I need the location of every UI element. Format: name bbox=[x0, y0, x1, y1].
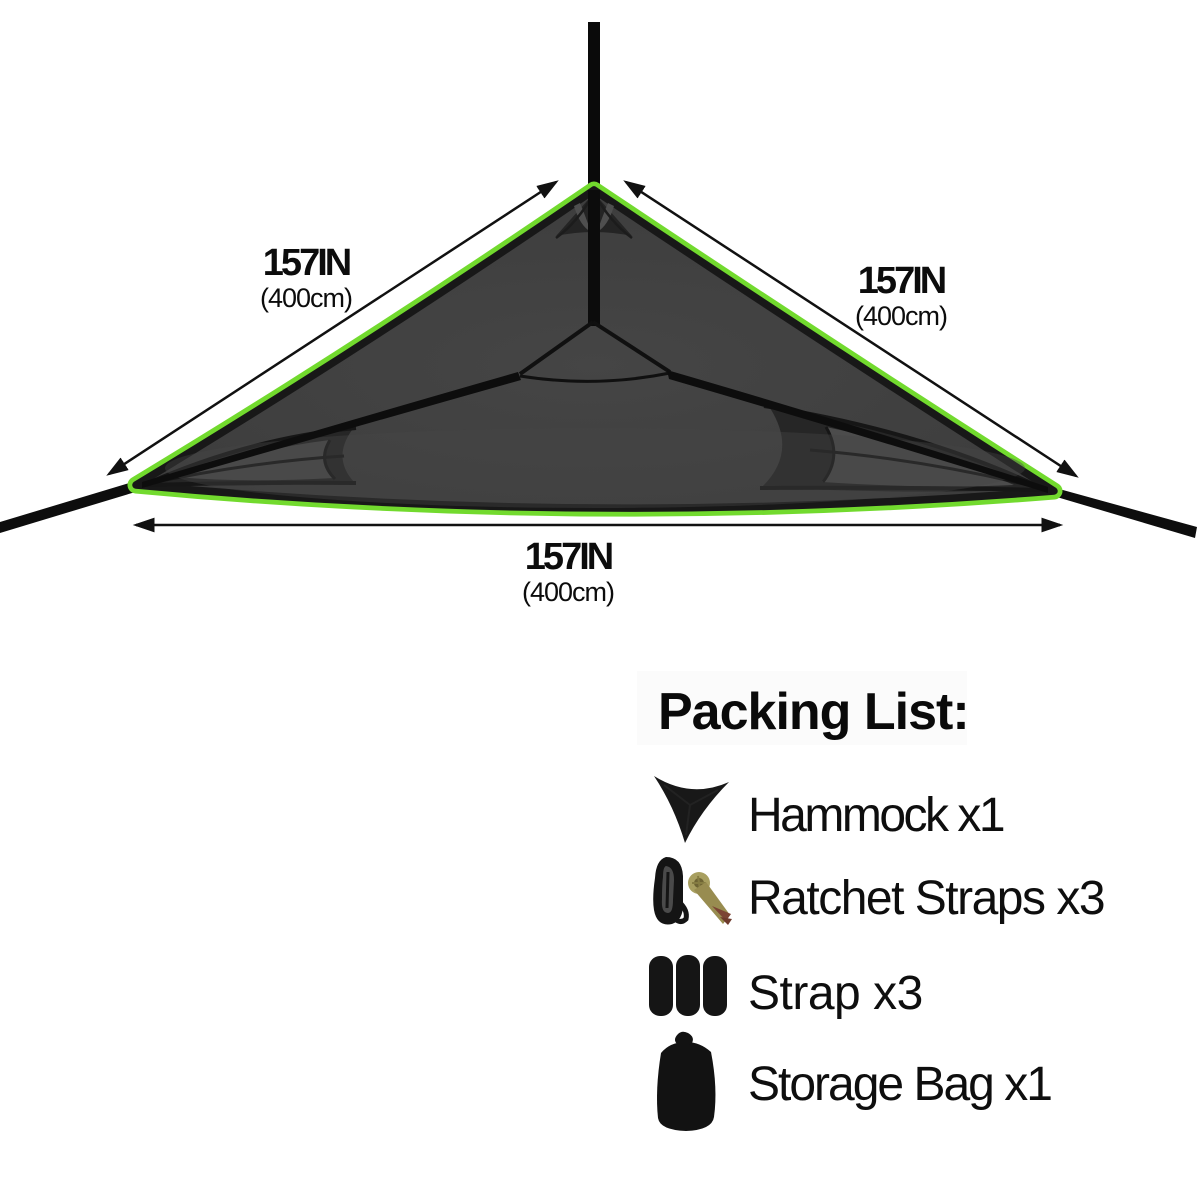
svg-text:157IN: 157IN bbox=[525, 536, 612, 578]
svg-text:(400cm): (400cm) bbox=[260, 283, 352, 313]
svg-text:Strap x3: Strap x3 bbox=[748, 967, 923, 1020]
svg-text:(400cm): (400cm) bbox=[522, 577, 614, 607]
svg-text:Packing List:: Packing List: bbox=[658, 683, 969, 741]
svg-text:157IN: 157IN bbox=[858, 260, 945, 302]
svg-text:(400cm): (400cm) bbox=[855, 301, 947, 331]
svg-text:Hammock x1: Hammock x1 bbox=[748, 789, 1004, 842]
svg-text:157IN: 157IN bbox=[263, 242, 350, 284]
svg-text:Ratchet Straps x3: Ratchet Straps x3 bbox=[748, 872, 1104, 925]
svg-text:Storage Bag x1: Storage Bag x1 bbox=[748, 1058, 1051, 1111]
